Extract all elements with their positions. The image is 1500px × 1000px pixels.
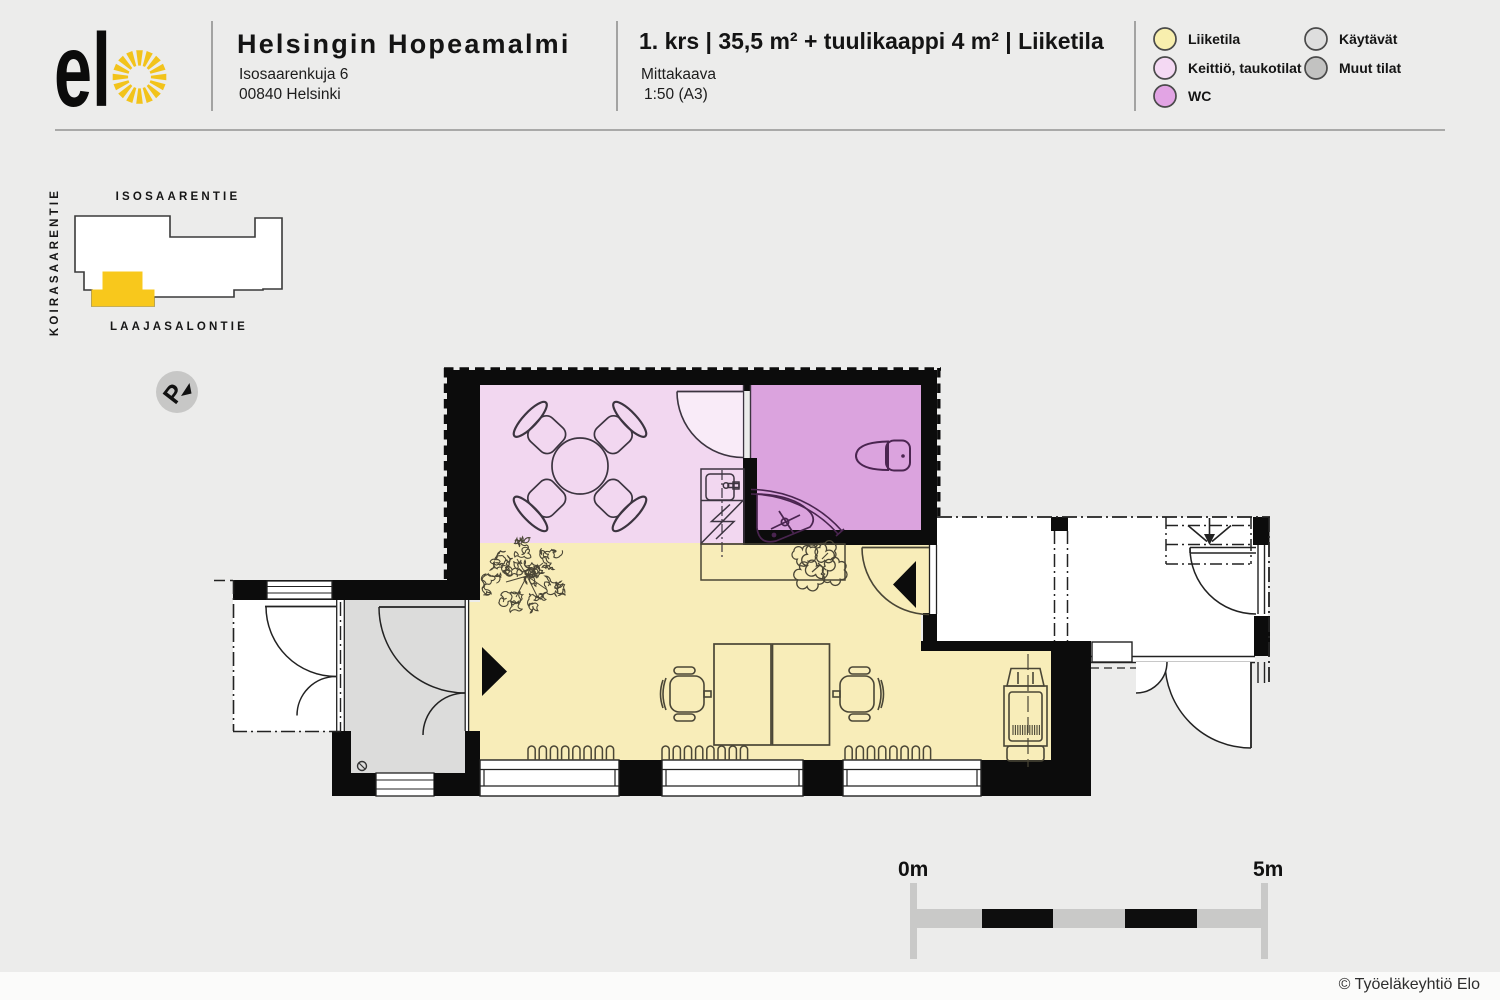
- svg-text:5m: 5m: [1253, 858, 1283, 881]
- svg-text:KOIRASAARENTIE: KOIRASAARENTIE: [49, 188, 61, 336]
- svg-text:LAAJASALONTIE: LAAJASALONTIE: [110, 321, 248, 333]
- svg-text:el: el: [54, 13, 111, 120]
- svg-text:Liiketila: Liiketila: [1188, 31, 1240, 47]
- svg-text:WC: WC: [1188, 88, 1211, 104]
- svg-text:Keittiö, taukotilat: Keittiö, taukotilat: [1188, 60, 1302, 76]
- svg-text:Muut tilat: Muut tilat: [1339, 60, 1402, 76]
- svg-text:0m: 0m: [898, 858, 928, 881]
- svg-text:ISOSAARENTIE: ISOSAARENTIE: [116, 191, 241, 203]
- svg-text:Käytävät: Käytävät: [1339, 31, 1398, 47]
